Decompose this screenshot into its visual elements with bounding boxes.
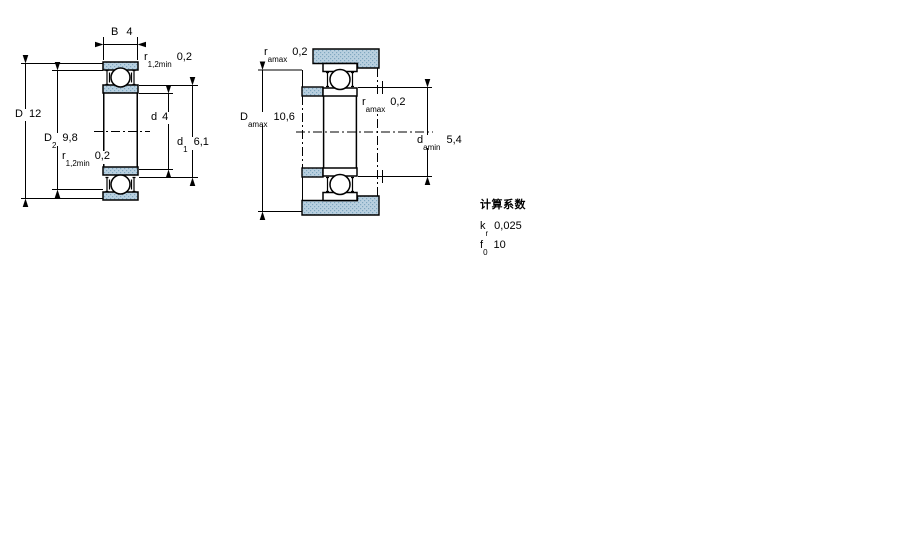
subscript: amin bbox=[423, 143, 440, 152]
fig2-mounting-section bbox=[258, 49, 433, 215]
factor-kr-row: kr 0,025 bbox=[480, 221, 526, 234]
ball bbox=[330, 175, 350, 195]
value: 4 bbox=[126, 27, 132, 39]
fig1-top-section bbox=[103, 62, 138, 93]
symbol: D bbox=[15, 109, 23, 121]
calculation-factors: 计算系数 kr 0,025 f0 10 bbox=[480, 196, 526, 259]
symbol: damin bbox=[417, 135, 440, 148]
dim-bore-label: d 4 bbox=[150, 112, 169, 124]
dim-d-outer-label: D 12 bbox=[14, 109, 42, 121]
factor-f0-row: f0 10 bbox=[480, 240, 526, 253]
fig2-bottom-section bbox=[323, 168, 357, 201]
dim-d1-label: d1 6,1 bbox=[176, 137, 210, 150]
shoulder-block-bottom bbox=[302, 168, 323, 177]
symbol: ramax bbox=[264, 47, 287, 60]
value: 0,2 bbox=[95, 151, 110, 163]
bearing-drawings bbox=[0, 0, 900, 560]
dim-d2-label: D2 9,8 bbox=[43, 133, 79, 146]
symbol: r1,2min bbox=[62, 151, 90, 164]
value: 0,025 bbox=[494, 221, 522, 232]
subscript: amax bbox=[366, 105, 386, 114]
symbol: f0 bbox=[480, 240, 488, 253]
value: 0,2 bbox=[390, 97, 405, 109]
symbol: d bbox=[151, 112, 157, 124]
dim-damax-label: Damax 10,6 bbox=[239, 112, 296, 125]
symbol: r1,2min bbox=[144, 52, 172, 65]
value: 10,6 bbox=[274, 112, 295, 124]
bearing-drawing-page: B 4 r1,2min 0,2 D 12 D2 9,8 r1,2min 0,2 … bbox=[0, 0, 900, 560]
value: 5,4 bbox=[446, 135, 461, 147]
value: 10 bbox=[494, 240, 506, 251]
symbol: D2 bbox=[44, 133, 56, 146]
symbol: Damax bbox=[240, 112, 268, 125]
value: 9,8 bbox=[62, 133, 77, 145]
subscript: 1,2min bbox=[66, 159, 90, 168]
symbol: B bbox=[111, 27, 118, 39]
dim-ramax-top-label: ramax 0,2 bbox=[263, 47, 309, 60]
symbol: ramax bbox=[362, 97, 385, 110]
dim-b-label: B 4 bbox=[110, 27, 133, 39]
fig1-bottom-section bbox=[103, 167, 138, 200]
dim-damin-label: damin 5,4 bbox=[416, 135, 463, 148]
value: 12 bbox=[29, 109, 41, 121]
subscript: amax bbox=[268, 55, 288, 64]
calculation-factors-title: 计算系数 bbox=[480, 196, 526, 212]
fig2-top-section bbox=[323, 64, 357, 97]
inner-ring bbox=[103, 167, 138, 175]
value: 4 bbox=[162, 112, 168, 124]
symbol: d1 bbox=[177, 137, 188, 150]
subscript: 0 bbox=[483, 248, 487, 257]
value: 0,2 bbox=[177, 52, 192, 64]
subscript: 1 bbox=[183, 145, 187, 154]
ball bbox=[330, 70, 350, 90]
value: 0,2 bbox=[292, 47, 307, 59]
subscript: 2 bbox=[52, 141, 56, 150]
symbol: kr bbox=[480, 221, 488, 234]
dim-r12-bottom-label: r1,2min 0,2 bbox=[61, 151, 111, 164]
subscript: amax bbox=[248, 120, 268, 129]
subscript: 1,2min bbox=[148, 60, 172, 69]
shoulder-block-top bbox=[302, 87, 323, 96]
ball bbox=[111, 175, 130, 194]
dim-r12-top-label: r1,2min 0,2 bbox=[143, 52, 193, 65]
ball bbox=[111, 68, 130, 87]
value: 6,1 bbox=[194, 137, 209, 149]
subscript: r bbox=[486, 229, 489, 238]
dim-ramax-mid-label: ramax 0,2 bbox=[361, 97, 407, 110]
